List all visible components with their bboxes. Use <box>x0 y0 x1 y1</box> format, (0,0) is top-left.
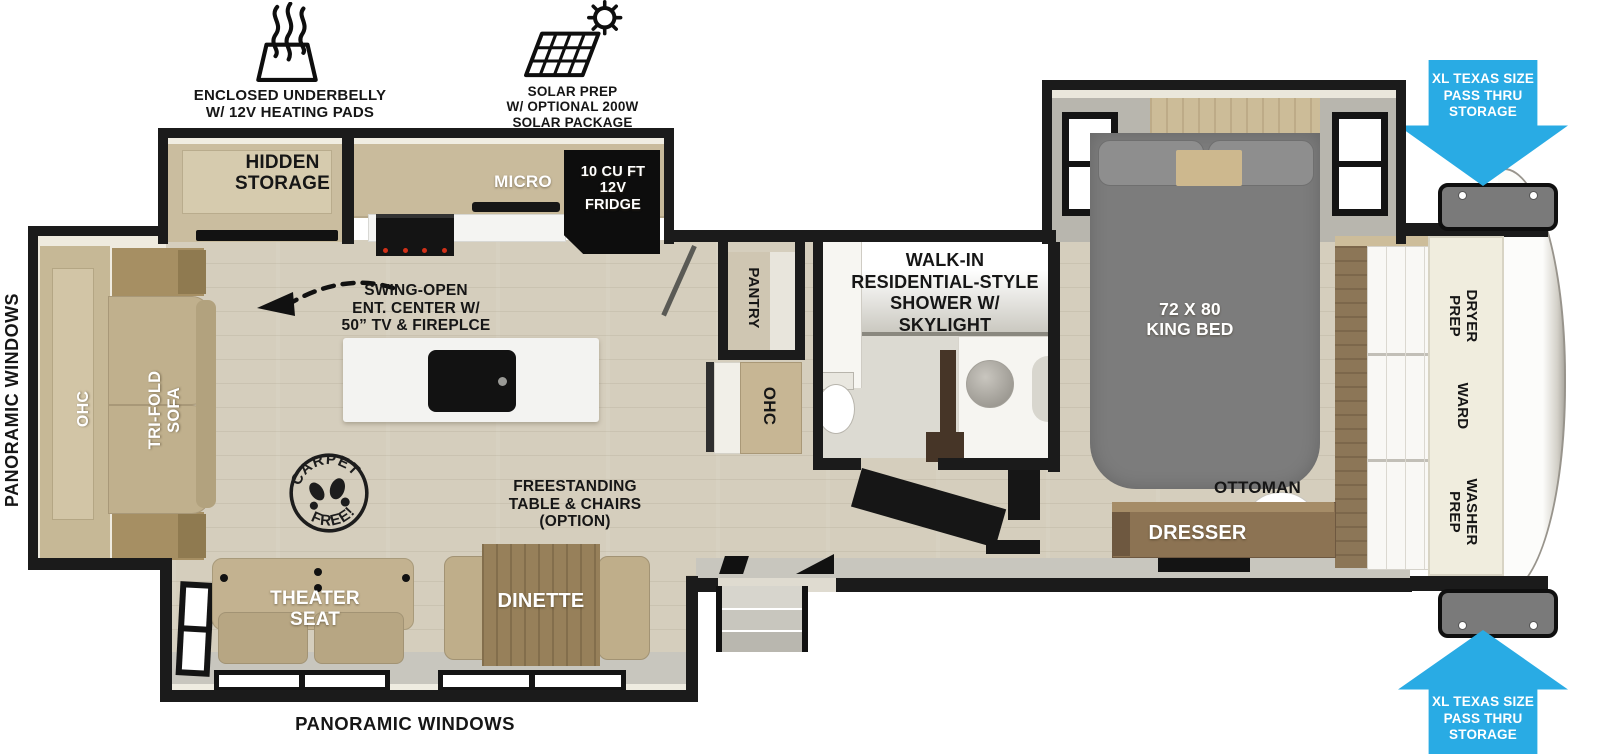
sofa-armrest-cap <box>178 514 206 558</box>
ohc-label: OHC <box>761 378 779 434</box>
heating-pads-icon <box>232 2 342 84</box>
freestanding-line1: FREESTANDING <box>490 478 660 496</box>
passthru-bottom-line1: XL TEXAS SIZE <box>1398 694 1568 711</box>
dryer-prep-line2: PREP <box>1445 273 1462 359</box>
panoramic-windows-label-left: PANORAMIC WINDOWS <box>2 285 24 515</box>
wall-segment <box>813 458 861 470</box>
entertainment-center-tv <box>196 230 338 241</box>
washer-prep-line2: PREP <box>1445 464 1462 560</box>
ent-center-label: SWING-OPEN ENT. CENTER W/ 50” TV & FIREP… <box>330 282 502 335</box>
solar-label: SOLAR PREP W/ OPTIONAL 200W SOLAR PACKAG… <box>460 84 685 130</box>
cabinet-counter <box>714 362 742 454</box>
wall-segment <box>686 578 718 592</box>
hidden-storage-line2: STORAGE <box>205 173 360 194</box>
wall-segment <box>718 350 805 360</box>
wall-segment <box>938 458 1060 470</box>
passthru-top-line3: STORAGE <box>1398 104 1568 121</box>
sink-faucet <box>498 377 507 386</box>
wall-segment <box>1396 80 1406 244</box>
passthru-top-line1: XL TEXAS SIZE <box>1398 71 1568 88</box>
wall-segment <box>666 230 1056 242</box>
carpet-free-stamp: CARPET FREE! <box>276 441 382 546</box>
freestanding-line2: TABLE & CHAIRS <box>490 496 660 514</box>
solar-label-line1: SOLAR PREP <box>460 84 685 99</box>
bed-slide-trim <box>1052 90 1396 98</box>
underbelly-label: ENCLOSED UNDERBELLY W/ 12V HEATING PADS <box>150 88 430 122</box>
headboard-shelf <box>1150 98 1320 134</box>
wall-segment <box>795 242 805 360</box>
king-bed-line1: 72 X 80 <box>1125 300 1255 320</box>
bedroom-stairs-landing <box>1008 468 1040 520</box>
pass-thru-storage-box-top <box>1438 183 1558 231</box>
freestanding-table-label: FREESTANDING TABLE & CHAIRS (OPTION) <box>490 478 660 531</box>
tri-fold-sofa-label: TRI-FOLD SOFA <box>146 350 186 470</box>
washer-prep-label: WASHER PREP <box>1445 464 1479 560</box>
dinette-label-text: DINETTE <box>466 590 616 613</box>
kitchen-utensil-rail <box>472 202 560 212</box>
underbelly-label-line2: W/ 12V HEATING PADS <box>150 105 430 122</box>
passthru-bottom-line3: STORAGE <box>1398 727 1568 744</box>
freestanding-line3: (OPTION) <box>490 513 660 531</box>
passthru-top-line2: PASS THRU <box>1398 88 1568 105</box>
pass-thru-storage-box-bottom <box>1438 589 1558 638</box>
passthru-bottom-label: XL TEXAS SIZE PASS THRU STORAGE <box>1398 630 1568 744</box>
wall-segment <box>342 138 354 244</box>
wall-segment <box>28 226 168 236</box>
wall-segment <box>836 578 1412 592</box>
window <box>1332 112 1388 216</box>
shower-line4: SKYLIGHT <box>838 315 1052 337</box>
pantry-shelf <box>770 252 795 350</box>
ottoman-label-text: OTTOMAN <box>1180 478 1335 497</box>
bath-cabinet <box>940 350 956 432</box>
dinette-label: DINETTE <box>466 590 616 613</box>
pantry-label-text: PANTRY <box>744 256 761 340</box>
hidden-storage-line1: HIDDEN <box>205 152 360 173</box>
passthru-top-label: XL TEXAS SIZE PASS THRU STORAGE <box>1398 60 1568 121</box>
king-bed-line2: KING BED <box>1125 320 1255 340</box>
wall-segment <box>686 576 698 702</box>
window <box>438 670 626 692</box>
sofa-ohc-label-text: OHC <box>75 380 93 438</box>
theater-seat-line2: SEAT <box>240 609 390 630</box>
ohc-label-text: OHC <box>760 378 779 434</box>
sofa-front-bolster <box>196 300 216 508</box>
ent-center-line2: ENT. CENTER W/ <box>330 300 502 318</box>
cabinet-side <box>706 362 714 452</box>
passthru-bottom-line2: PASS THRU <box>1398 711 1568 728</box>
fridge-line2: 12V <box>566 180 660 196</box>
fridge-line3: FRIDGE <box>566 197 660 213</box>
solar-label-line2: W/ OPTIONAL 200W <box>460 99 685 114</box>
panoramic-bottom-text: PANORAMIC WINDOWS <box>255 714 555 735</box>
wall-segment <box>158 128 674 138</box>
tri-fold-sofa-line1: TRI-FOLD <box>146 350 165 470</box>
washer-prep-line1: WASHER <box>1462 464 1479 560</box>
hidden-storage-label: HIDDEN STORAGE <box>205 152 360 195</box>
wall-segment <box>718 242 728 360</box>
wall-segment <box>1048 242 1060 472</box>
bed-runner <box>1176 150 1242 186</box>
rv-floorplan: ENCLOSED UNDERBELLY W/ 12V HEATING PADS … <box>0 0 1600 754</box>
dryer-prep-label: DRYER PREP <box>1445 273 1479 359</box>
wall-segment <box>664 128 674 244</box>
wall-segment <box>1042 80 1406 90</box>
shower-line1: WALK-IN <box>838 250 1052 272</box>
passthru-arrow-bottom: XL TEXAS SIZE PASS THRU STORAGE <box>1398 630 1568 754</box>
microwave-label: MICRO <box>478 172 568 191</box>
floor-mat <box>1158 558 1250 572</box>
window <box>214 670 390 692</box>
passthru-arrow-top: XL TEXAS SIZE PASS THRU STORAGE <box>1398 60 1568 186</box>
bottom-wall-lining <box>696 558 1410 578</box>
pantry-label: PANTRY <box>745 256 761 340</box>
theater-seat-label: THEATER SEAT <box>240 588 390 631</box>
tri-fold-sofa-line2: SOFA <box>165 350 184 470</box>
fridge-line1: 10 CU FT <box>566 164 660 180</box>
wall-segment <box>1042 80 1052 244</box>
dresser-label-text: DRESSER <box>1125 522 1270 545</box>
dryer-prep-line1: DRYER <box>1462 273 1479 359</box>
stair-rail <box>986 540 1040 554</box>
window <box>176 581 215 677</box>
wall-segment <box>160 558 172 702</box>
wardrobe-side-panels <box>1335 246 1367 568</box>
shower-line3: SHOWER W/ <box>838 293 1052 315</box>
vanity-sink <box>966 360 1014 408</box>
dresser-top <box>1112 502 1334 512</box>
ent-center-line3: 50” TV & FIREPLCE <box>330 317 502 335</box>
sofa-armrest-cap <box>178 250 206 294</box>
underbelly-label-line1: ENCLOSED UNDERBELLY <box>150 88 430 105</box>
panoramic-left-text: PANORAMIC WINDOWS <box>2 285 22 515</box>
shower-label: WALK-IN RESIDENTIAL-STYLE SHOWER W/ SKYL… <box>838 250 1052 336</box>
wall-segment <box>28 226 38 570</box>
entry-steps <box>716 586 808 652</box>
ottoman-label: OTTOMAN <box>1180 478 1335 497</box>
fridge-label: 10 CU FT 12V FRIDGE <box>566 164 660 213</box>
dresser-label: DRESSER <box>1125 522 1270 545</box>
ward-label: WARD <box>1454 376 1470 436</box>
solar-panel-icon <box>512 0 632 84</box>
panoramic-windows-label-bottom: PANORAMIC WINDOWS <box>255 714 555 735</box>
wall-segment <box>160 690 698 702</box>
vanity-mirror <box>1032 356 1048 422</box>
sofa-ohc-label: OHC <box>75 380 95 438</box>
ent-center-line1: SWING-OPEN <box>330 282 502 300</box>
king-bed-label: 72 X 80 KING BED <box>1125 300 1255 340</box>
ward-label-text: WARD <box>1453 376 1470 436</box>
shower-line2: RESIDENTIAL-STYLE <box>838 272 1052 294</box>
theater-seat-line1: THEATER <box>240 588 390 609</box>
wall-segment <box>28 558 172 570</box>
wardrobe-doors <box>1367 246 1430 570</box>
stove <box>376 214 454 256</box>
microwave-label-text: MICRO <box>478 172 568 191</box>
wall-segment <box>813 242 823 468</box>
